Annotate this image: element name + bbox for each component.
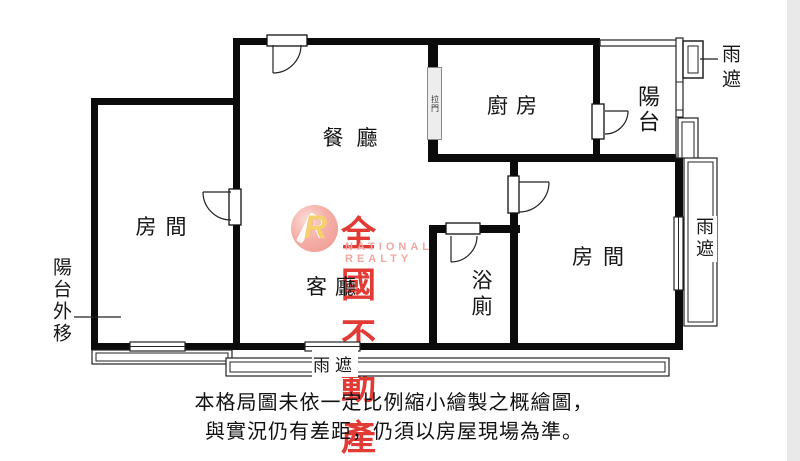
bedroom-right-door-arc	[519, 182, 549, 212]
disclaimer-line2: 與實況仍有差距，仍須以房屋現場為準。	[0, 417, 788, 446]
rain-shelter-bottom-label: 雨遮	[312, 350, 358, 377]
room-label-dining: 餐廳	[300, 122, 400, 152]
balcony-door-arc	[605, 111, 628, 134]
entry-door-arc	[273, 45, 301, 73]
room-label-bedroom-left: 房間	[111, 211, 211, 241]
room-label-balcony: 陽台	[630, 85, 662, 135]
room-label-kitchen: 廚房	[462, 90, 562, 120]
floor-plan: R 全國不動產 NATIONAL REALTY	[0, 0, 800, 461]
window	[130, 342, 185, 351]
window	[674, 217, 683, 290]
balcony-door-panel	[592, 104, 604, 139]
balcony-shifted-label: 陽台外移	[48, 257, 75, 345]
disclaimer: 本格局圖未依一定比例縮小繪製之概繪圖， 與實況仍有差距，仍須以房屋現場為準。	[0, 388, 788, 446]
room-label-bedroom-right: 房間	[548, 241, 648, 271]
bath-door-arc	[451, 236, 477, 262]
rain-shelter-top-label: 雨遮	[717, 44, 744, 94]
balcony-top-railing	[600, 40, 678, 46]
sliding-door: 拉門	[427, 67, 442, 140]
room-label-bath: 浴廁	[466, 269, 496, 321]
disclaimer-line1: 本格局圖未依一定比例縮小繪製之概繪圖，	[0, 388, 788, 417]
bedroom-right-door-panel	[508, 176, 519, 213]
sliding-door-label: 拉門	[431, 95, 439, 113]
entry-door-panel	[267, 35, 307, 46]
bath-door-panel	[446, 223, 480, 234]
rain-shelter-right-label: 雨遮	[689, 216, 717, 262]
room-label-living: 客廳	[281, 271, 381, 301]
